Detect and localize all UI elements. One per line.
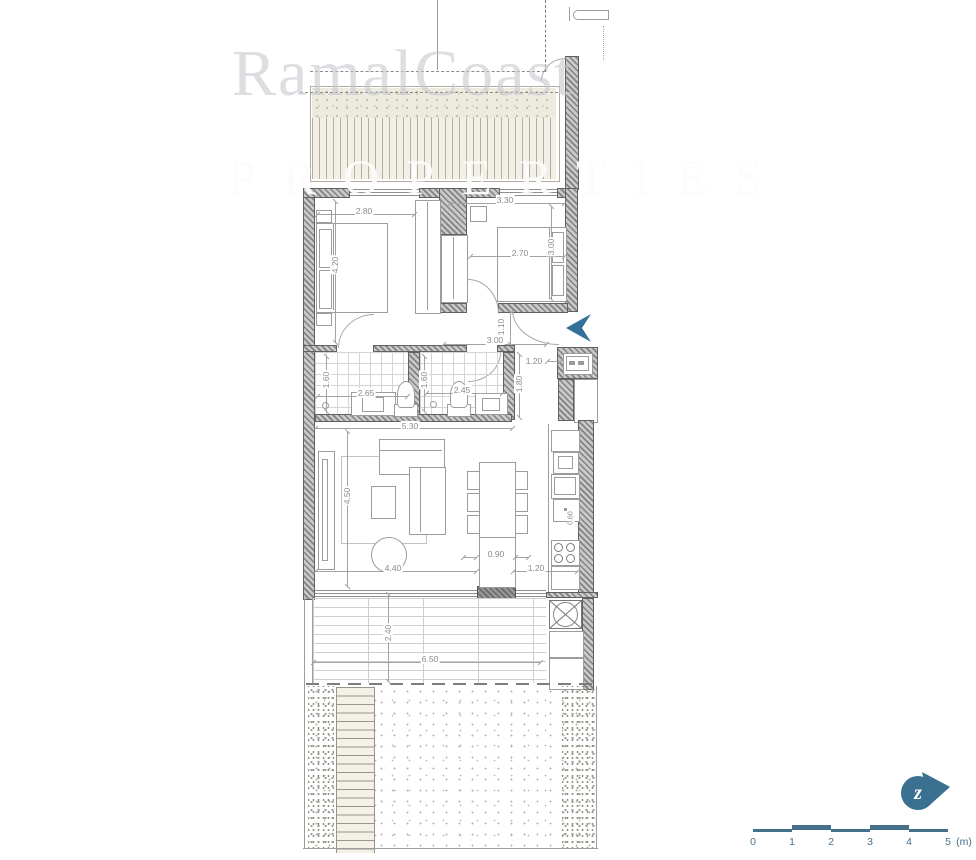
chair (467, 493, 480, 512)
dimension-label: 1.60 (321, 371, 331, 390)
dining-table (479, 462, 516, 539)
fridge-detail (554, 477, 576, 495)
washer-detail (578, 361, 584, 365)
dimension-label: 0.60 (568, 510, 575, 526)
pillow (552, 265, 564, 296)
wardrobe-rail (427, 202, 428, 310)
scale-label: 5 (945, 836, 951, 848)
coffee-table (371, 486, 396, 519)
entrance-door-arc (512, 310, 559, 345)
dimension-label: 4.40 (384, 563, 403, 573)
shaft-x-symbol (549, 600, 582, 629)
dim-line (347, 431, 348, 587)
scale-label: 3 (867, 836, 873, 848)
pillow (319, 270, 332, 309)
window (315, 590, 478, 598)
dimension-label: 2.65 (357, 388, 376, 398)
plot-line (596, 686, 597, 848)
dim-line (463, 557, 477, 558)
hedge (562, 686, 596, 848)
dimension-label: 2.80 (355, 206, 374, 216)
wardrobe (415, 200, 441, 314)
wall (303, 188, 350, 198)
window (513, 590, 546, 598)
door-arc (468, 279, 499, 314)
dimension-label: 3.00 (546, 238, 556, 257)
dimension-label: 3.00 (486, 335, 505, 345)
dim-line (513, 571, 578, 572)
dotted-line (603, 26, 604, 60)
entry-arrow-icon (566, 314, 591, 342)
washer-detail (569, 361, 575, 365)
chair (467, 471, 480, 490)
scale-segment (792, 825, 831, 830)
wall (303, 345, 337, 352)
scale-segment (753, 829, 792, 832)
scale-segment (909, 829, 948, 832)
chair (515, 471, 528, 490)
dimension-label: 1.80 (514, 375, 524, 394)
shaft (574, 379, 598, 423)
site-line (437, 0, 438, 70)
floor-plan: 2.80 4.20 3.30 2.70 3.00 1.10 3.00 1.20 … (0, 0, 976, 860)
dimension-label: 1.60 (419, 371, 429, 390)
closet-rail (453, 237, 454, 299)
sofa-line (380, 450, 442, 451)
scale-label: 2 (828, 836, 834, 848)
oven-detail (558, 456, 573, 469)
dimension-label: 2.70 (511, 248, 530, 258)
dimension-label: 1.20 (525, 356, 544, 366)
boundary-line (545, 0, 546, 72)
chair (515, 515, 528, 534)
north-compass-icon: z (901, 776, 935, 810)
burner (566, 554, 575, 563)
burner (554, 543, 563, 552)
top-door-jamb (569, 7, 570, 21)
scale-segment (831, 829, 870, 832)
wall (558, 379, 574, 421)
deck-path (336, 687, 375, 853)
scale-unit: (m) (956, 836, 972, 848)
floor-drain (430, 401, 437, 408)
counter-edge (548, 424, 549, 592)
kitchen-island (479, 537, 516, 588)
scale-segment (870, 825, 909, 830)
terrace-edge (312, 598, 313, 683)
burner (566, 543, 575, 552)
dim-line (547, 361, 561, 362)
scale-label: 1 (789, 836, 795, 848)
scale-label: 0 (750, 836, 756, 848)
door-arc (338, 314, 374, 348)
dimension-label: 4.20 (330, 256, 340, 275)
burner (554, 554, 563, 563)
wall (565, 56, 579, 190)
sofa-line (420, 468, 421, 532)
wall (439, 303, 467, 313)
wall (373, 345, 467, 352)
toilet (397, 381, 415, 408)
top-door-symbol (573, 10, 609, 20)
scale-label: 4 (906, 836, 912, 848)
boundary-line (300, 92, 558, 93)
pergola-deck (312, 118, 556, 179)
boundary-line (306, 683, 598, 685)
wall (439, 188, 467, 235)
scale-bar: 0 1 2 3 4 5 (m) (753, 822, 967, 852)
dimension-label: 0.90 (487, 549, 506, 559)
dimension-label: 5.30 (401, 421, 420, 431)
sofa-chaise (409, 467, 446, 535)
nightstand (316, 313, 332, 326)
tv-unit-detail (322, 459, 328, 561)
dimension-label: 4.50 (342, 487, 352, 506)
wall (303, 188, 315, 600)
chair (467, 515, 480, 534)
wall (578, 420, 594, 594)
window (350, 189, 419, 197)
terrace-edge (304, 598, 305, 848)
nightstand (470, 206, 487, 222)
kitchen-cabinet (551, 566, 580, 590)
dim-line (515, 557, 529, 558)
hedge (308, 686, 334, 848)
chair (515, 493, 528, 512)
dimension-label: 1.10 (496, 318, 506, 337)
sink-basin (482, 398, 500, 411)
boundary-line (310, 71, 545, 72)
kitchen-cabinet (551, 430, 580, 452)
dimension-label: 2.40 (383, 624, 393, 643)
dimension-label: 6.50 (421, 654, 440, 664)
north-glyph: z (914, 783, 922, 803)
utility-box (549, 631, 584, 658)
dimension-label: 3.30 (496, 195, 515, 205)
plot-line (303, 848, 598, 849)
dimension-label: 2.45 (453, 385, 472, 395)
dim-line (510, 311, 511, 345)
closet (441, 235, 468, 303)
dimension-label: 1.20 (527, 563, 546, 573)
terrace-floor (313, 598, 546, 683)
sink-basin (362, 397, 384, 412)
